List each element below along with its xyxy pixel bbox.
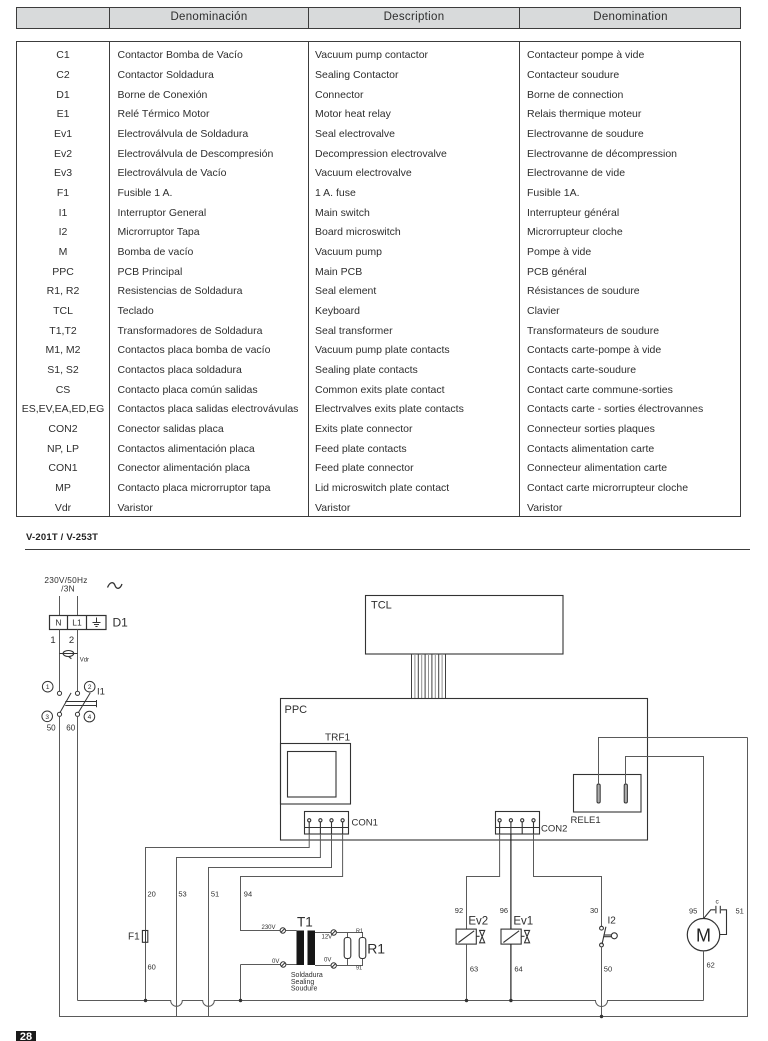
svg-text:T1: T1	[297, 915, 313, 930]
svg-text:4: 4	[88, 714, 92, 721]
svg-text:0V: 0V	[272, 959, 279, 965]
svg-text:50: 50	[47, 724, 56, 733]
svg-text:230V: 230V	[262, 925, 276, 931]
svg-text:Soudure: Soudure	[291, 985, 318, 992]
svg-text:92: 92	[455, 906, 463, 915]
svg-text:91: 91	[356, 966, 362, 972]
svg-text:50: 50	[604, 964, 612, 973]
svg-text:/3N: /3N	[61, 584, 75, 594]
svg-text:51: 51	[211, 890, 219, 899]
svg-text:63: 63	[470, 964, 478, 973]
svg-text:I1: I1	[97, 687, 105, 698]
svg-text:Ev2: Ev2	[468, 916, 488, 928]
svg-text:60: 60	[148, 963, 156, 972]
svg-text:12V: 12V	[322, 935, 333, 941]
svg-text:1: 1	[50, 635, 55, 646]
svg-text:R1: R1	[367, 941, 385, 957]
svg-text:CON2: CON2	[541, 824, 567, 835]
svg-text:53: 53	[178, 890, 186, 899]
svg-text:RELE1: RELE1	[571, 815, 601, 826]
svg-text:R1: R1	[356, 929, 363, 935]
svg-text:2: 2	[69, 635, 74, 646]
svg-text:95: 95	[689, 907, 697, 916]
svg-text:TRF1: TRF1	[325, 733, 350, 744]
svg-text:N: N	[55, 618, 61, 628]
svg-text:60: 60	[66, 724, 75, 733]
svg-text:L1: L1	[72, 618, 82, 628]
svg-text:CON1: CON1	[352, 818, 378, 829]
svg-text:64: 64	[514, 964, 522, 973]
svg-text:62: 62	[707, 961, 715, 970]
svg-text:M: M	[696, 925, 711, 945]
svg-text:F1: F1	[128, 932, 140, 943]
svg-text:I2: I2	[608, 916, 617, 927]
svg-text:96: 96	[500, 906, 508, 915]
svg-text:3: 3	[45, 714, 49, 721]
svg-text:2: 2	[88, 684, 92, 691]
svg-text:Ev1: Ev1	[513, 916, 533, 928]
svg-text:Vdr: Vdr	[80, 658, 89, 664]
svg-text:94: 94	[244, 890, 252, 899]
svg-text:51: 51	[736, 907, 744, 916]
svg-text:D1: D1	[113, 616, 129, 630]
svg-text:30: 30	[590, 906, 598, 915]
svg-text:PPC: PPC	[285, 704, 308, 716]
svg-text:0V: 0V	[324, 958, 331, 964]
svg-text:c: c	[716, 899, 720, 906]
svg-text:TCL: TCL	[371, 600, 392, 612]
svg-text:20: 20	[148, 890, 156, 899]
svg-text:1: 1	[46, 684, 50, 691]
